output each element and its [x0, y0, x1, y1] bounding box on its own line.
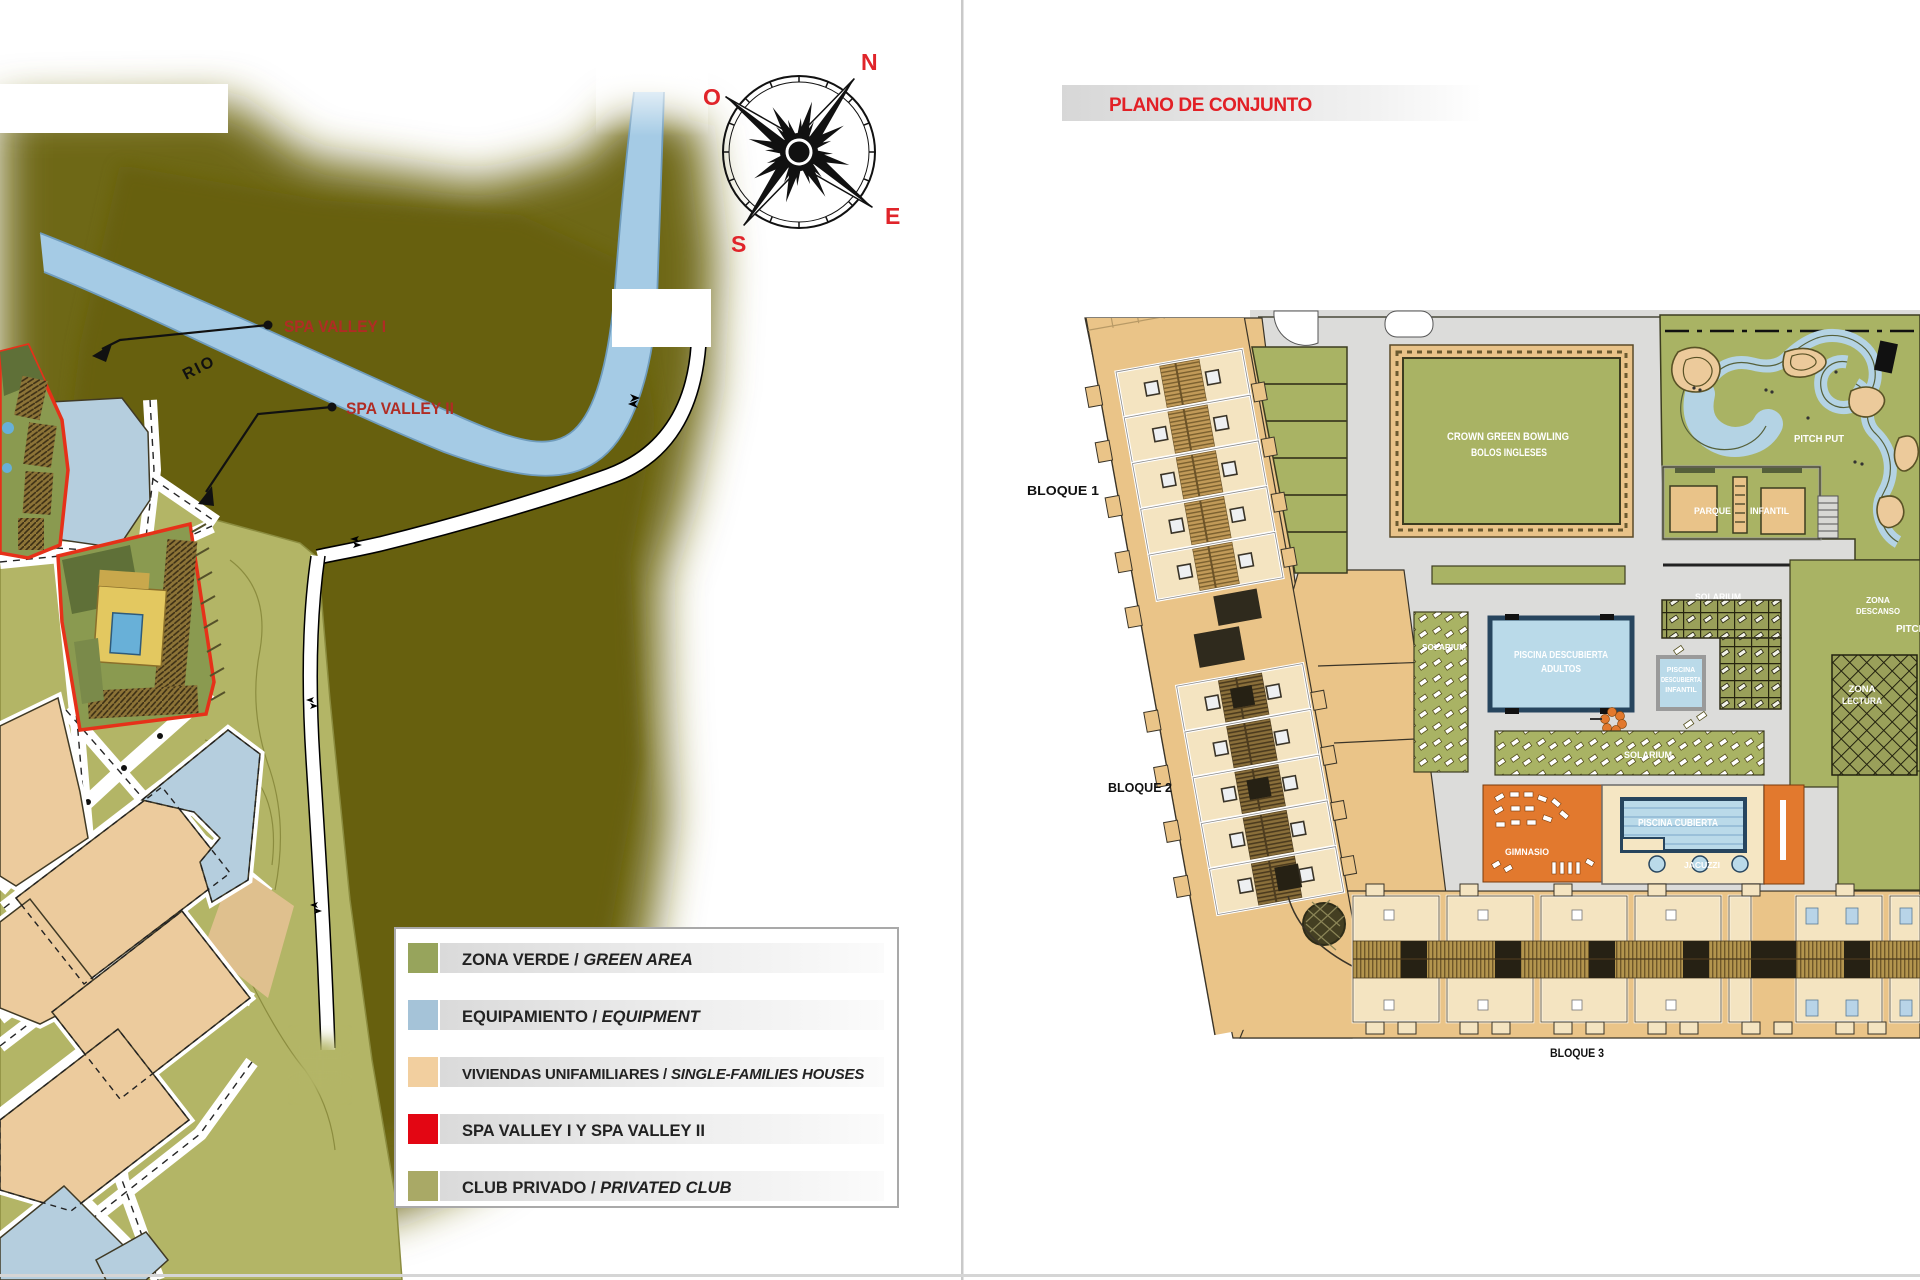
svg-text:ZONA VERDE / GREEN AREA: ZONA VERDE / GREEN AREA	[462, 951, 693, 969]
svg-text:S: S	[731, 231, 746, 257]
svg-text:PLANO DE CONJUNTO: PLANO DE CONJUNTO	[1109, 95, 1312, 116]
svg-text:PITCH PUT: PITCH PUT	[1794, 434, 1844, 445]
svg-text:VIVIENDAS UNIFAMILIARES / SING: VIVIENDAS UNIFAMILIARES / SINGLE-FAMILIE…	[462, 1066, 864, 1083]
svg-text:PISCINA: PISCINA	[1667, 667, 1695, 674]
svg-text:ZONA: ZONA	[1849, 684, 1876, 695]
svg-text:PISCINA DESCUBIERTA: PISCINA DESCUBIERTA	[1514, 650, 1608, 661]
svg-text:BLOQUE 2: BLOQUE 2	[1108, 781, 1172, 795]
svg-text:ZONA: ZONA	[1866, 595, 1890, 605]
svg-text:LECTURA: LECTURA	[1842, 696, 1882, 707]
svg-text:SOLARIUM: SOLARIUM	[1422, 642, 1466, 652]
svg-text:DESCUBIERTA: DESCUBIERTA	[1661, 677, 1701, 684]
svg-text:O: O	[703, 84, 721, 110]
svg-text:BLOQUE 1: BLOQUE 1	[1027, 484, 1099, 498]
svg-text:BLOQUE 3: BLOQUE 3	[1550, 1046, 1604, 1060]
svg-text:DESCANSO: DESCANSO	[1856, 606, 1900, 616]
svg-text:INFANTIL: INFANTIL	[1750, 506, 1789, 517]
svg-text:JACUZZI: JACUZZI	[1684, 860, 1720, 870]
svg-text:SPA VALLEY I Y SPA VALLEY II: SPA VALLEY I Y SPA VALLEY II	[462, 1122, 705, 1140]
svg-text:CLUB PRIVADO / PRIVATED CLUB: CLUB PRIVADO / PRIVATED CLUB	[462, 1179, 732, 1197]
svg-text:SPA VALLEY I: SPA VALLEY I	[284, 317, 386, 336]
svg-text:SPA VALLEY II: SPA VALLEY II	[346, 399, 454, 418]
svg-text:EQUIPAMIENTO / EQUIPMENT: EQUIPAMIENTO / EQUIPMENT	[462, 1008, 702, 1026]
svg-text:INFANTIL: INFANTIL	[1665, 687, 1697, 694]
svg-text:PITCH: PITCH	[1896, 624, 1920, 635]
svg-text:N: N	[861, 49, 878, 75]
svg-text:PISCINA CUBIERTA: PISCINA CUBIERTA	[1638, 818, 1718, 829]
svg-text:CROWN GREEN BOWLING: CROWN GREEN BOWLING	[1447, 431, 1569, 443]
svg-text:ADULTOS: ADULTOS	[1541, 664, 1581, 675]
svg-text:E: E	[885, 203, 900, 229]
svg-text:SOLARIUM: SOLARIUM	[1624, 750, 1672, 761]
svg-text:GIMNASIO: GIMNASIO	[1505, 847, 1549, 858]
svg-text:BOLOS INGLESES: BOLOS INGLESES	[1471, 447, 1547, 459]
svg-text:PARQUE: PARQUE	[1694, 506, 1731, 517]
